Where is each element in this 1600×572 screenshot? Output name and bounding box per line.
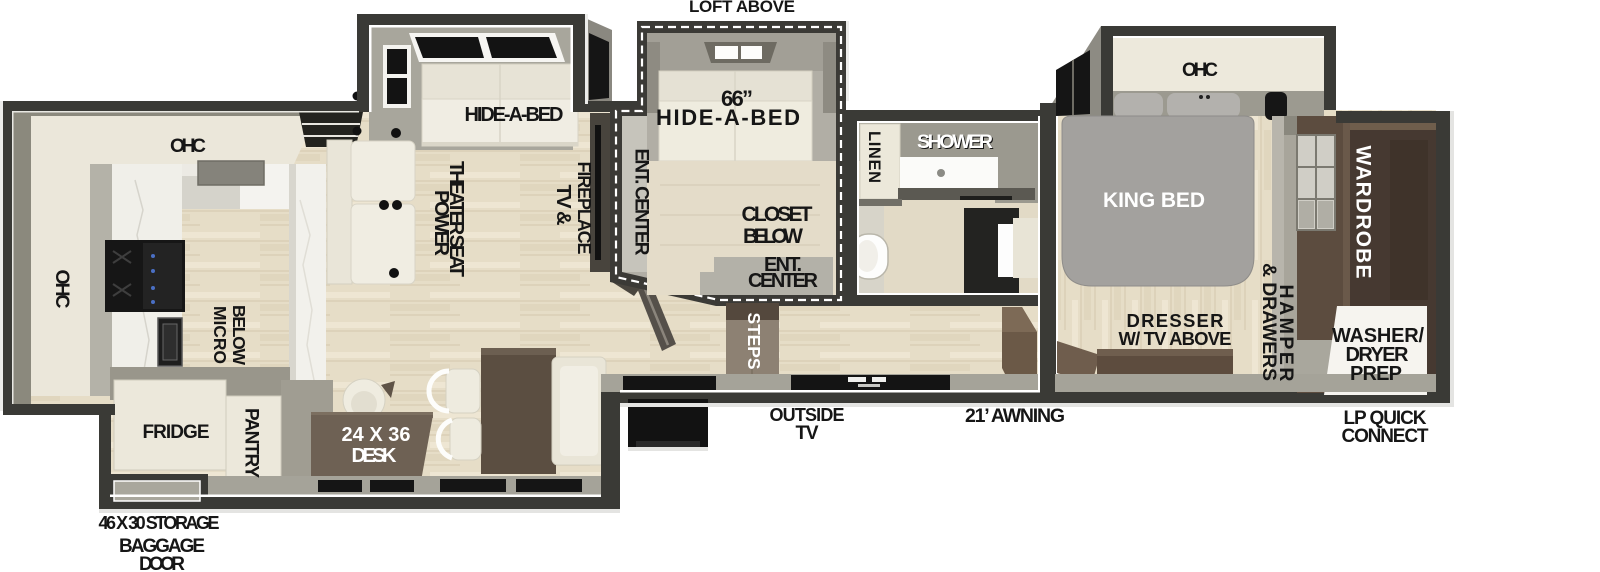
svg-text:OHC: OHC xyxy=(51,270,73,309)
svg-text:HIDE-A-BED: HIDE-A-BED xyxy=(656,105,800,130)
svg-text:ENT. CENTER: ENT. CENTER xyxy=(631,149,652,256)
svg-text:STEPS: STEPS xyxy=(744,313,764,370)
svg-text:LINEN: LINEN xyxy=(865,131,883,183)
svg-text:LOFT ABOVE: LOFT ABOVE xyxy=(689,0,795,16)
svg-text:WARDROBE: WARDROBE xyxy=(1352,146,1375,279)
svg-text:FRIDGE: FRIDGE xyxy=(143,422,210,443)
svg-text:CLOSET: CLOSET xyxy=(742,203,813,226)
svg-text:SHOWER: SHOWER xyxy=(917,131,993,153)
svg-text:46 X 30 STORAGE: 46 X 30 STORAGE xyxy=(99,513,220,533)
svg-text:24 X 36: 24 X 36 xyxy=(342,424,411,446)
svg-text:PREP: PREP xyxy=(1350,363,1402,385)
svg-text:KING BED: KING BED xyxy=(1103,189,1205,212)
svg-text:MICRO: MICRO xyxy=(210,306,230,364)
svg-text:CENTER: CENTER xyxy=(748,270,819,292)
svg-text:OHC: OHC xyxy=(170,135,206,157)
svg-text:W/ TV ABOVE: W/ TV ABOVE xyxy=(1119,328,1232,349)
svg-text:CONNECT: CONNECT xyxy=(1342,426,1429,447)
svg-text:PANTRY: PANTRY xyxy=(241,408,262,478)
svg-text:FIREPLACE: FIREPLACE xyxy=(574,162,594,255)
svg-text:OUTSIDE: OUTSIDE xyxy=(770,405,845,425)
svg-text:21’ AWNING: 21’ AWNING xyxy=(965,405,1065,427)
svg-text:OHC: OHC xyxy=(1182,60,1218,81)
svg-text:BELOW: BELOW xyxy=(229,305,249,365)
svg-text:DOOR: DOOR xyxy=(139,554,185,572)
svg-text:TV &: TV & xyxy=(552,185,574,226)
svg-text:BELOW: BELOW xyxy=(743,225,803,248)
svg-text:HIDE-A-BED: HIDE-A-BED xyxy=(465,104,564,126)
svg-text:THEATER SEAT: THEATER SEAT xyxy=(445,161,467,277)
svg-text:DESK: DESK xyxy=(352,445,398,467)
svg-text:TV: TV xyxy=(796,423,819,444)
